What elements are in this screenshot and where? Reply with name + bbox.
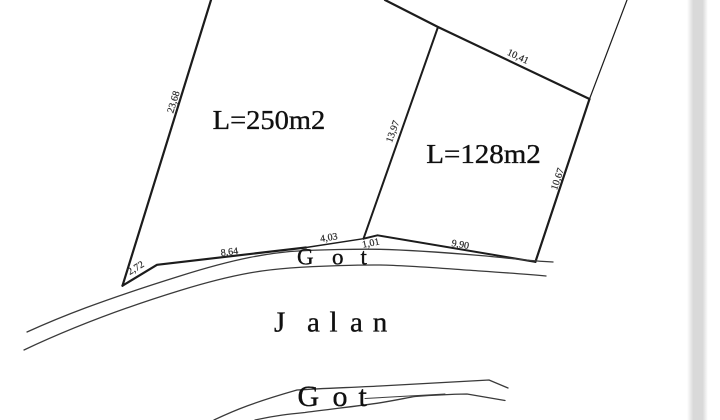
svg-text:t: t [359, 380, 368, 413]
svg-text:G: G [298, 380, 320, 413]
svg-text:o: o [332, 245, 344, 270]
svg-text:8,64: 8,64 [220, 246, 239, 259]
svg-text:o: o [333, 380, 348, 413]
svg-text:G: G [297, 245, 314, 270]
svg-text:n: n [373, 307, 388, 339]
svg-text:L=128m2: L=128m2 [426, 138, 541, 169]
svg-text:a: a [350, 307, 363, 339]
svg-text:L=250m2: L=250m2 [213, 104, 325, 135]
svg-text:J: J [274, 307, 285, 339]
svg-text:l: l [330, 307, 338, 339]
svg-text:a: a [307, 307, 320, 339]
